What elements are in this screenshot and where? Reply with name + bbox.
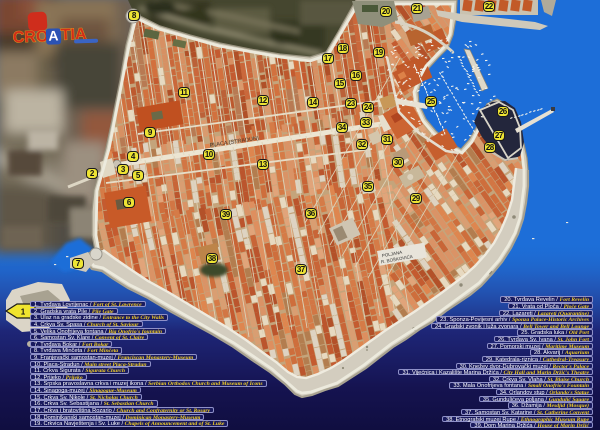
svg-text:1: 1 — [21, 308, 26, 317]
svg-text:CRO: CRO — [13, 28, 49, 46]
svg-text:A: A — [48, 27, 59, 43]
